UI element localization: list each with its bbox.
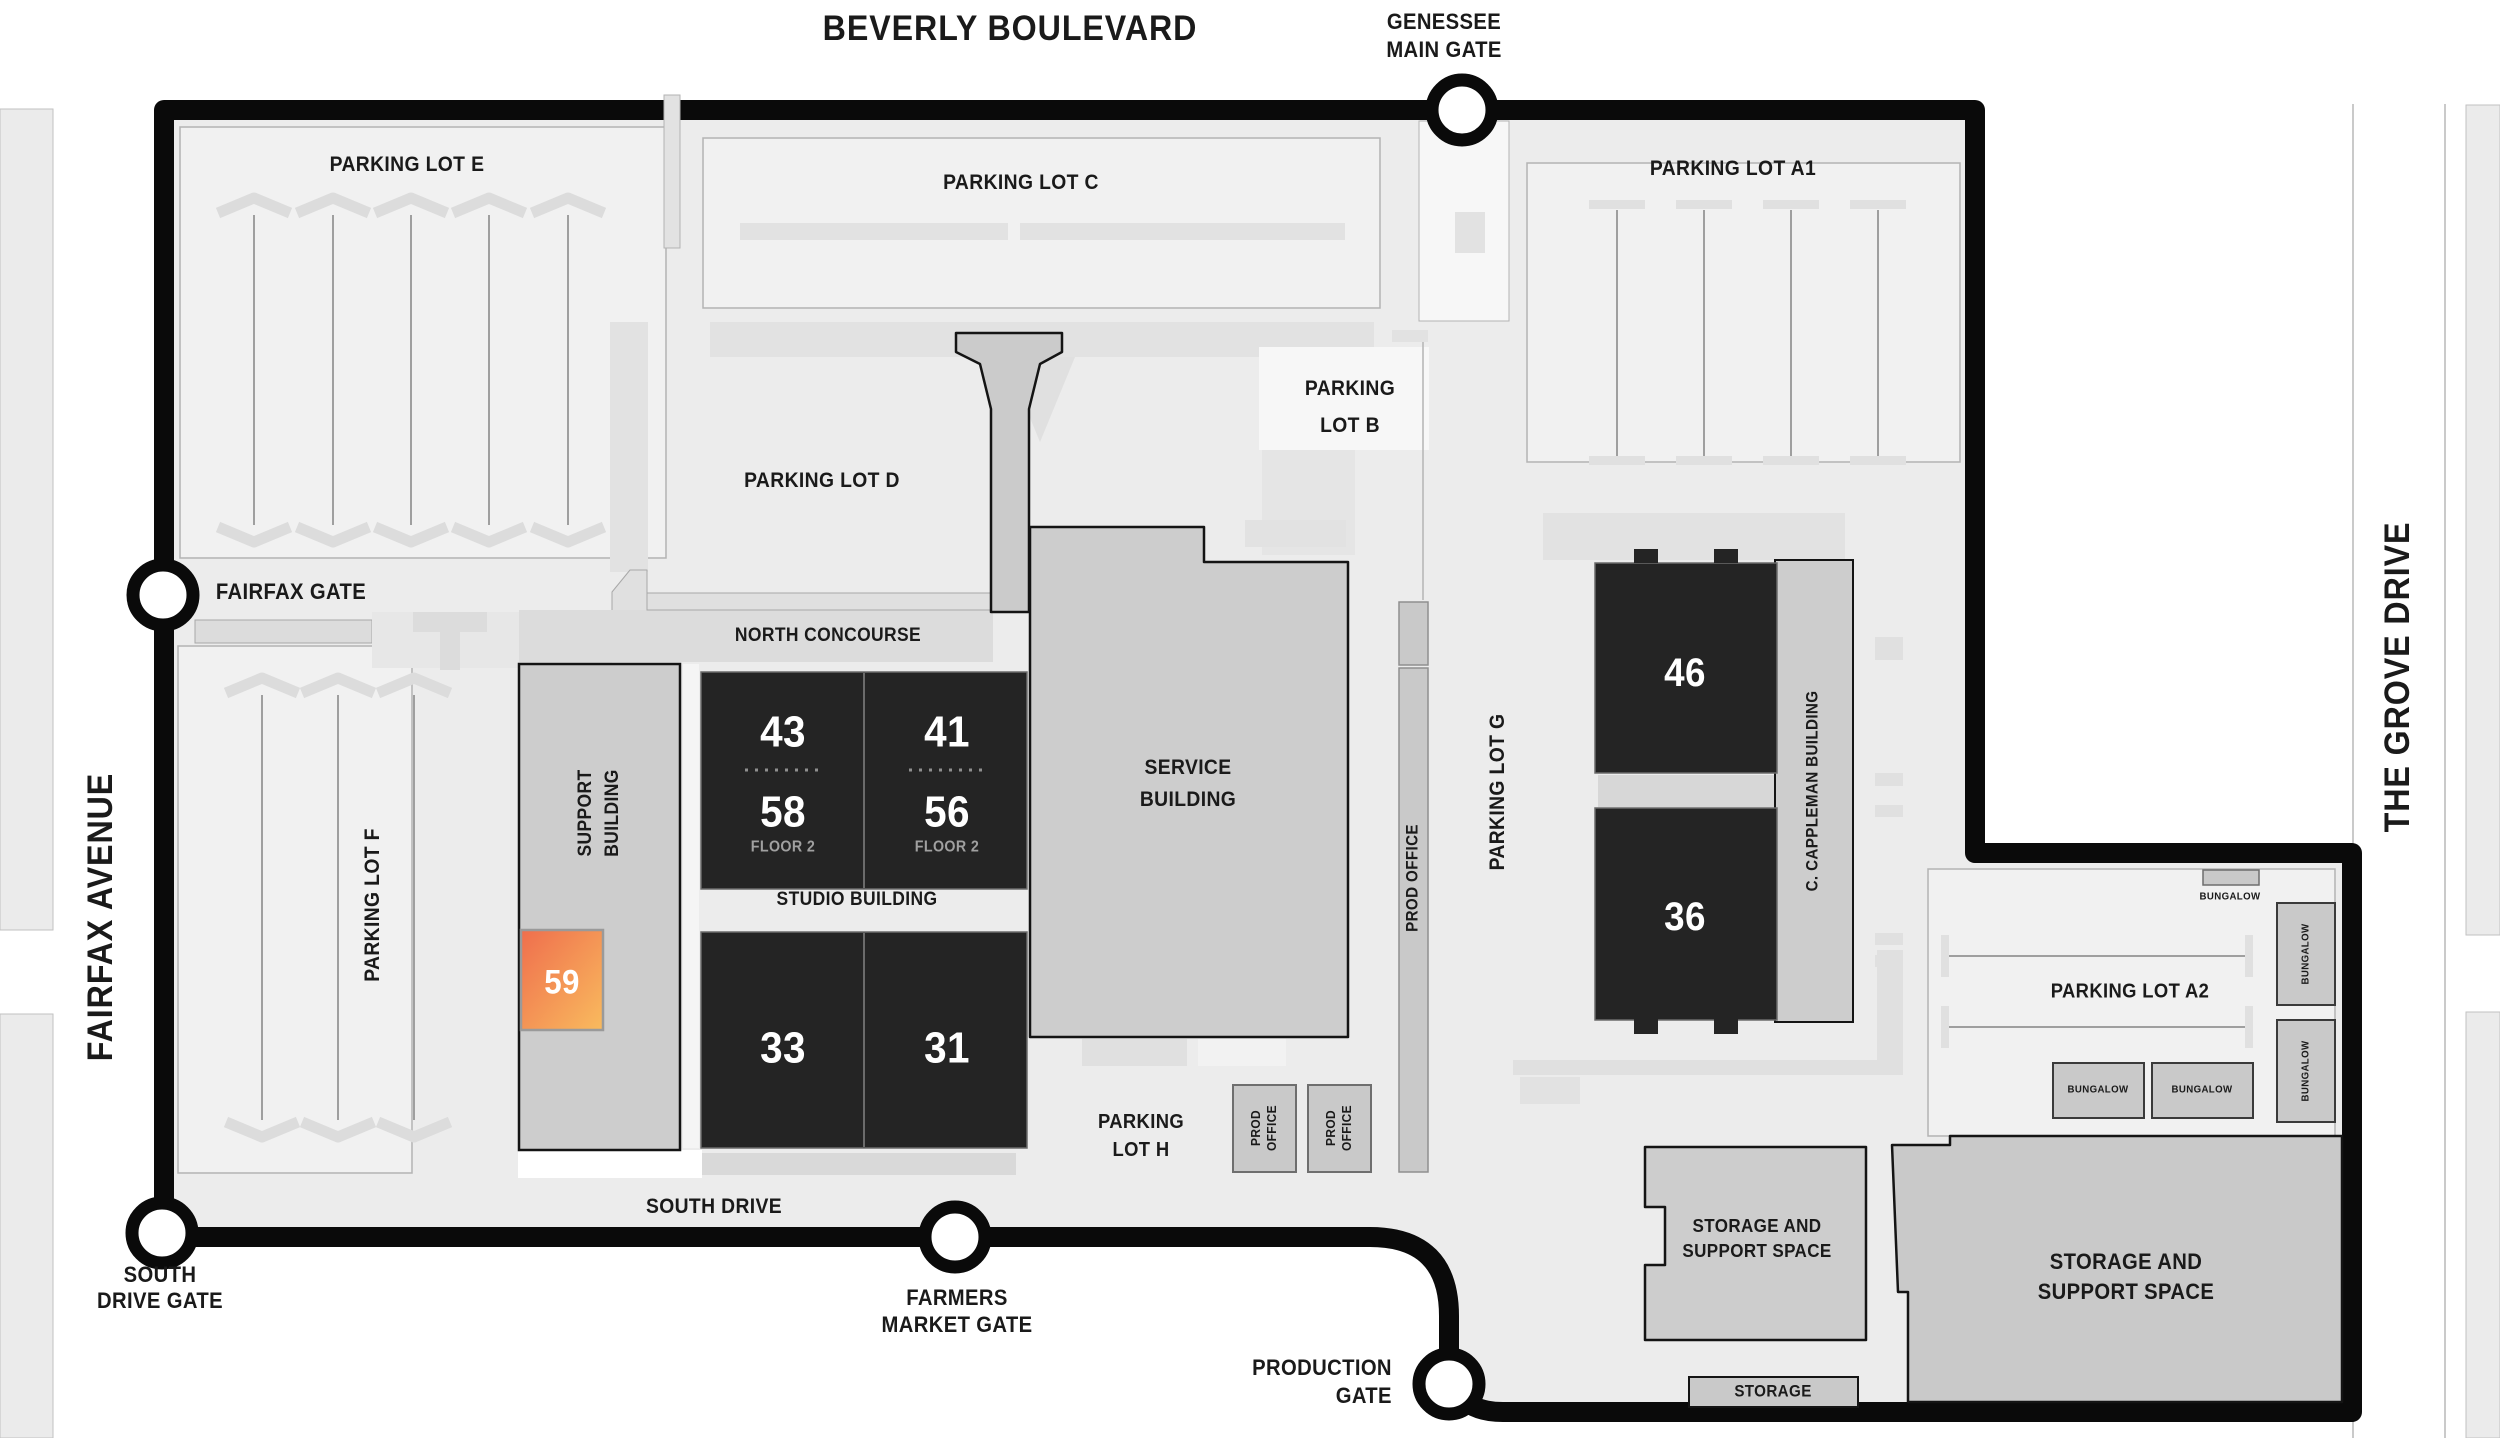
south-drive-band (518, 1150, 702, 1178)
service-building-label: SERVICEBUILDING (1140, 752, 1236, 816)
support-building-label-text: BUILDING (599, 769, 626, 856)
north-concourse-label-text: NORTH CONCOURSE (735, 624, 921, 648)
parking-tick (1763, 456, 1819, 465)
stage-56-number: 56 (924, 785, 970, 840)
stage-59-number: 59 (544, 962, 580, 1005)
parking-bar (1875, 773, 1903, 786)
prod-office-box-label: PRODOFFICE (1248, 1105, 1280, 1151)
storage-support-right-label-text: STORAGE AND (2038, 1247, 2214, 1277)
stage-58-floor2-text: FLOOR 2 (751, 838, 815, 857)
south-drive-gate-marker (132, 1203, 192, 1263)
stage-36-number-text: 36 (1664, 892, 1706, 942)
west-block (0, 109, 53, 930)
bungalow-box (2203, 870, 2259, 885)
stage-31-number-text: 31 (924, 1021, 970, 1076)
prod-office-strip-label: PROD OFFICE (1403, 824, 1424, 932)
stage-36-tab (1634, 1019, 1658, 1034)
fairfax-gate-label-text: FAIRFAX GATE (216, 578, 366, 606)
parking-tick (1941, 1006, 1949, 1048)
bungalow-label: BUNGALOW (2300, 1041, 2313, 1102)
bungalow-label: BUNGALOW (2172, 1084, 2233, 1097)
west-block (0, 1014, 53, 1438)
farmers-market-gate-marker (925, 1207, 985, 1267)
parking-lot-d-label-text: PARKING LOT D (744, 468, 900, 494)
stage-46-tab (1714, 549, 1738, 563)
bungalow-label-text: BUNGALOW (2300, 1041, 2313, 1102)
bungalow-label-text: BUNGALOW (2068, 1084, 2129, 1097)
road-strip (664, 95, 680, 248)
parking-lot-a1-label: PARKING LOT A1 (1650, 156, 1816, 182)
fairfax-gate-marker (133, 565, 193, 625)
parking-lot-b-label-text: PARKING (1305, 370, 1395, 407)
street-beverly-boulevard: BEVERLY BOULEVARD (823, 7, 1198, 51)
genessee-main-gate-marker (1432, 80, 1492, 140)
south-drive-gate-label: SOUTHDRIVE GATE (97, 1262, 223, 1314)
parking-bar (740, 223, 1008, 240)
genessee-main-gate-label-text: GENESSEE (1386, 8, 1501, 36)
stage-46-number-text: 46 (1664, 648, 1706, 698)
street-the-grove-drive: THE GROVE DRIVE (2376, 522, 2420, 833)
studio-lot-map: BEVERLY BOULEVARDFAIRFAX AVENUETHE GROVE… (0, 0, 2500, 1438)
prod-office-box-label-text: OFFICE (1339, 1105, 1355, 1151)
storage-label: STORAGE (1734, 1382, 1811, 1403)
storage-support-left-label: STORAGE ANDSUPPORT SPACE (1682, 1213, 1831, 1263)
stage-33-number-text: 33 (760, 1021, 806, 1076)
east-block (2466, 1012, 2500, 1438)
east-block (2466, 105, 2500, 935)
storage-support-right-label: STORAGE ANDSUPPORT SPACE (2038, 1247, 2214, 1307)
cappleman-building-label: C. CAPPLEMAN BUILDING (1803, 691, 1824, 892)
road-strip (647, 593, 993, 610)
service-dock (1082, 1039, 1187, 1066)
stage-connector (1598, 775, 1774, 807)
parking-lot-e-label: PARKING LOT E (330, 152, 485, 178)
parking-lot-f-label-text: PARKING LOT F (360, 828, 386, 982)
storage-label-text: STORAGE (1734, 1382, 1811, 1403)
farmers-market-gate-label-text: MARKET GATE (882, 1311, 1033, 1338)
parking-tick (1763, 200, 1819, 209)
stage-41-number: 41 (924, 705, 970, 760)
parking-lot-c-label: PARKING LOT C (943, 170, 1099, 196)
service-building-label-text: BUILDING (1140, 784, 1236, 816)
parking-lot-e-area (180, 127, 666, 558)
south-drive-label-text: SOUTH DRIVE (646, 1194, 782, 1220)
stage-46-number: 46 (1664, 648, 1706, 698)
north-concourse-label: NORTH CONCOURSE (735, 624, 921, 648)
parking-tick (1589, 456, 1645, 465)
prod-office-box-label: PRODOFFICE (1323, 1105, 1355, 1151)
studio-building-label: STUDIO BUILDING (777, 888, 938, 912)
road-band (610, 322, 648, 572)
parking-lot-f-label: PARKING LOT F (360, 828, 386, 982)
parking-lot-b-label-text: LOT B (1305, 407, 1395, 444)
parking-tick (1676, 200, 1732, 209)
parking-tick (1850, 456, 1906, 465)
parking-bar (1875, 637, 1903, 660)
parking-lot-a1-label-text: PARKING LOT A1 (1650, 156, 1816, 182)
production-gate-label: PRODUCTIONGATE (1252, 1354, 1392, 1410)
parking-bar (1875, 805, 1903, 817)
support-building (519, 664, 680, 1150)
prod-office-box-label-text: PROD (1248, 1105, 1264, 1151)
genessee-main-gate-label-text: MAIN GATE (1386, 36, 1501, 64)
parking-tick (1676, 456, 1732, 465)
parking-bar (1875, 933, 1903, 945)
parking-tick (2245, 1006, 2253, 1048)
parking-bar (1020, 223, 1345, 240)
parking-tick (2245, 935, 2253, 977)
lot-map-canvas (0, 0, 2500, 1438)
service-building-label-text: SERVICE (1140, 752, 1236, 784)
stage-31-number: 31 (924, 1021, 970, 1076)
prod-office-strip (1399, 602, 1428, 665)
farmers-market-gate-label: FARMERSMARKET GATE (882, 1284, 1033, 1338)
storage-support-right-label-text: SUPPORT SPACE (2038, 1277, 2214, 1307)
prod-office-strip-label-text: PROD OFFICE (1403, 824, 1424, 932)
stage-36-number: 36 (1664, 892, 1706, 942)
parking-lot-c-label-text: PARKING LOT C (943, 170, 1099, 196)
bungalow-label: BUNGALOW (2200, 891, 2261, 904)
road-band (1543, 513, 1845, 560)
cappleman-building-label-text: C. CAPPLEMAN BUILDING (1803, 691, 1824, 892)
fairfax-gate-road (195, 620, 372, 643)
stage-58-number: 58 (760, 785, 806, 840)
road-island (1455, 212, 1485, 253)
street-fairfax-avenue-text: FAIRFAX AVENUE (79, 773, 123, 1061)
stage-58-number-text: 58 (760, 785, 806, 840)
genessee-main-gate-label: GENESSEEMAIN GATE (1386, 8, 1501, 64)
production-gate-label-text: GATE (1252, 1382, 1392, 1410)
studio-building-label-text: STUDIO BUILDING (777, 888, 938, 912)
street-fairfax-avenue: FAIRFAX AVENUE (79, 773, 123, 1061)
fairfax-gate-label: FAIRFAX GATE (216, 578, 366, 606)
stage-56-floor2: FLOOR 2 (915, 838, 979, 857)
parking-lot-a2-label: PARKING LOT A2 (2051, 980, 2209, 1005)
stage-59-number-text: 59 (544, 962, 580, 1005)
production-gate-marker (1419, 1354, 1479, 1414)
parking-lot-g-label-text: PARKING LOT G (1485, 714, 1511, 871)
production-gate-label-text: PRODUCTION (1252, 1354, 1392, 1382)
stage-43-number-text: 43 (760, 705, 806, 760)
bungalow-label-text: BUNGALOW (2300, 924, 2313, 985)
storage-support-left-label-text: SUPPORT SPACE (1682, 1238, 1831, 1263)
support-building-label-text: SUPPORT (572, 769, 599, 856)
parking-tick (1589, 200, 1645, 209)
parking-lot-h-label-text: LOT H (1098, 1136, 1184, 1164)
south-drive-gate-label-text: SOUTH (97, 1262, 223, 1288)
parking-lot-d-label: PARKING LOT D (744, 468, 900, 494)
parking-lot-e-label-text: PARKING LOT E (330, 152, 485, 178)
prod-office-box-label-text: PROD (1323, 1105, 1339, 1151)
stage-41-number-text: 41 (924, 705, 970, 760)
stage-43-number: 43 (760, 705, 806, 760)
south-drive-label: SOUTH DRIVE (646, 1194, 782, 1220)
road-band (1513, 1060, 1903, 1075)
south-drive-band (700, 1153, 1016, 1175)
stage-56-number-text: 56 (924, 785, 970, 840)
walkway (683, 664, 699, 1148)
stage-33-number: 33 (760, 1021, 806, 1076)
stage-58-floor2: FLOOR 2 (751, 838, 815, 857)
stage-46-tab (1634, 549, 1658, 563)
prod-office-box-label-text: OFFICE (1264, 1105, 1280, 1151)
parking-lot-a2-label-text: PARKING LOT A2 (2051, 980, 2209, 1005)
support-building-label: SUPPORTBUILDING (572, 769, 626, 856)
parking-lot-b-label: PARKINGLOT B (1305, 370, 1395, 444)
bungalow-label: BUNGALOW (2068, 1084, 2129, 1097)
stage-36-tab (1714, 1019, 1738, 1034)
bungalow-label: BUNGALOW (2300, 924, 2313, 985)
street-beverly-boulevard-text: BEVERLY BOULEVARD (823, 7, 1198, 51)
bungalow-label-text: BUNGALOW (2200, 891, 2261, 904)
road-band (1877, 950, 1903, 1062)
storage-support-left-label-text: STORAGE AND (1682, 1213, 1831, 1238)
parking-bar (1245, 520, 1346, 547)
south-drive-gate-label-text: DRIVE GATE (97, 1288, 223, 1314)
parking-lot-h-label: PARKINGLOT H (1098, 1108, 1184, 1164)
bungalow-label-text: BUNGALOW (2172, 1084, 2233, 1097)
parking-bar (1392, 330, 1428, 342)
parking-lot-g-label: PARKING LOT G (1485, 714, 1511, 871)
parking-tick (1850, 200, 1906, 209)
service-dock (1198, 1039, 1286, 1066)
parking-bar (1520, 1077, 1580, 1104)
street-the-grove-drive-text: THE GROVE DRIVE (2376, 522, 2420, 833)
parking-lot-h-label-text: PARKING (1098, 1108, 1184, 1136)
farmers-market-gate-label-text: FARMERS (882, 1284, 1033, 1311)
stage-56-floor2-text: FLOOR 2 (915, 838, 979, 857)
parking-tick (1941, 935, 1949, 977)
